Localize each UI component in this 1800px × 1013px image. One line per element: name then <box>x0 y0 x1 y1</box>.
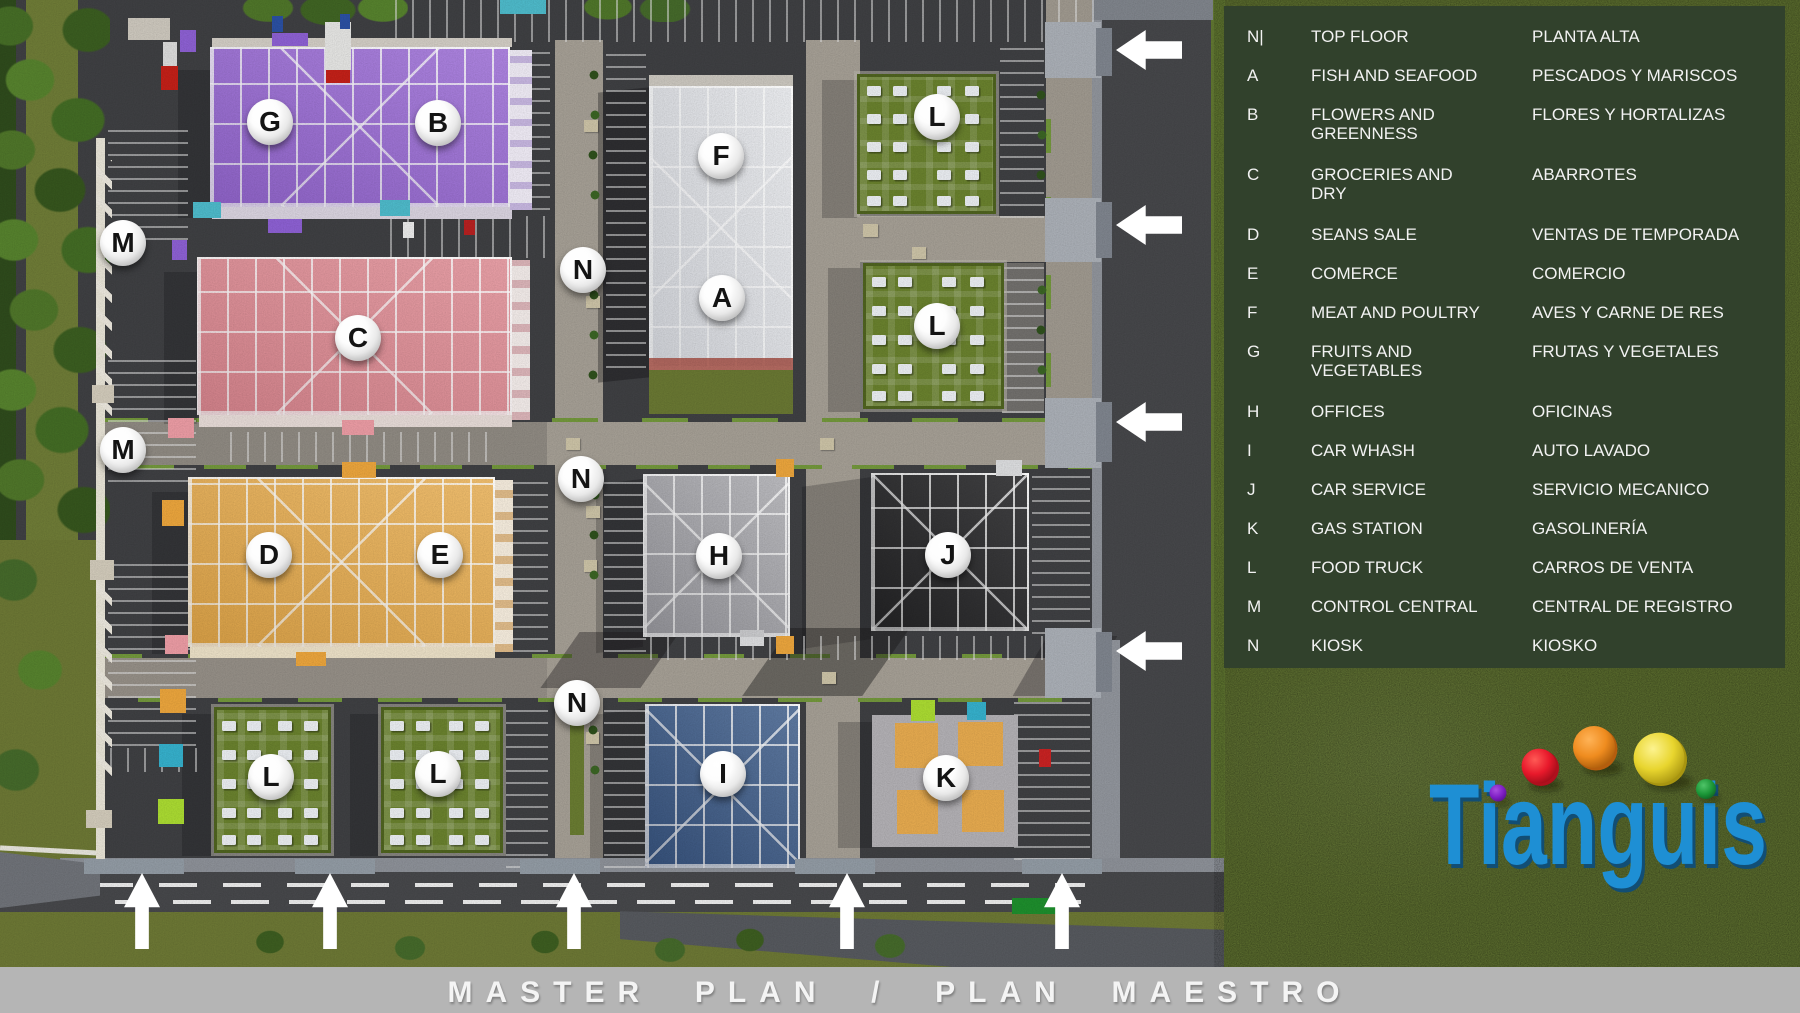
svg-text:Tianguis: Tianguis <box>1429 761 1767 889</box>
